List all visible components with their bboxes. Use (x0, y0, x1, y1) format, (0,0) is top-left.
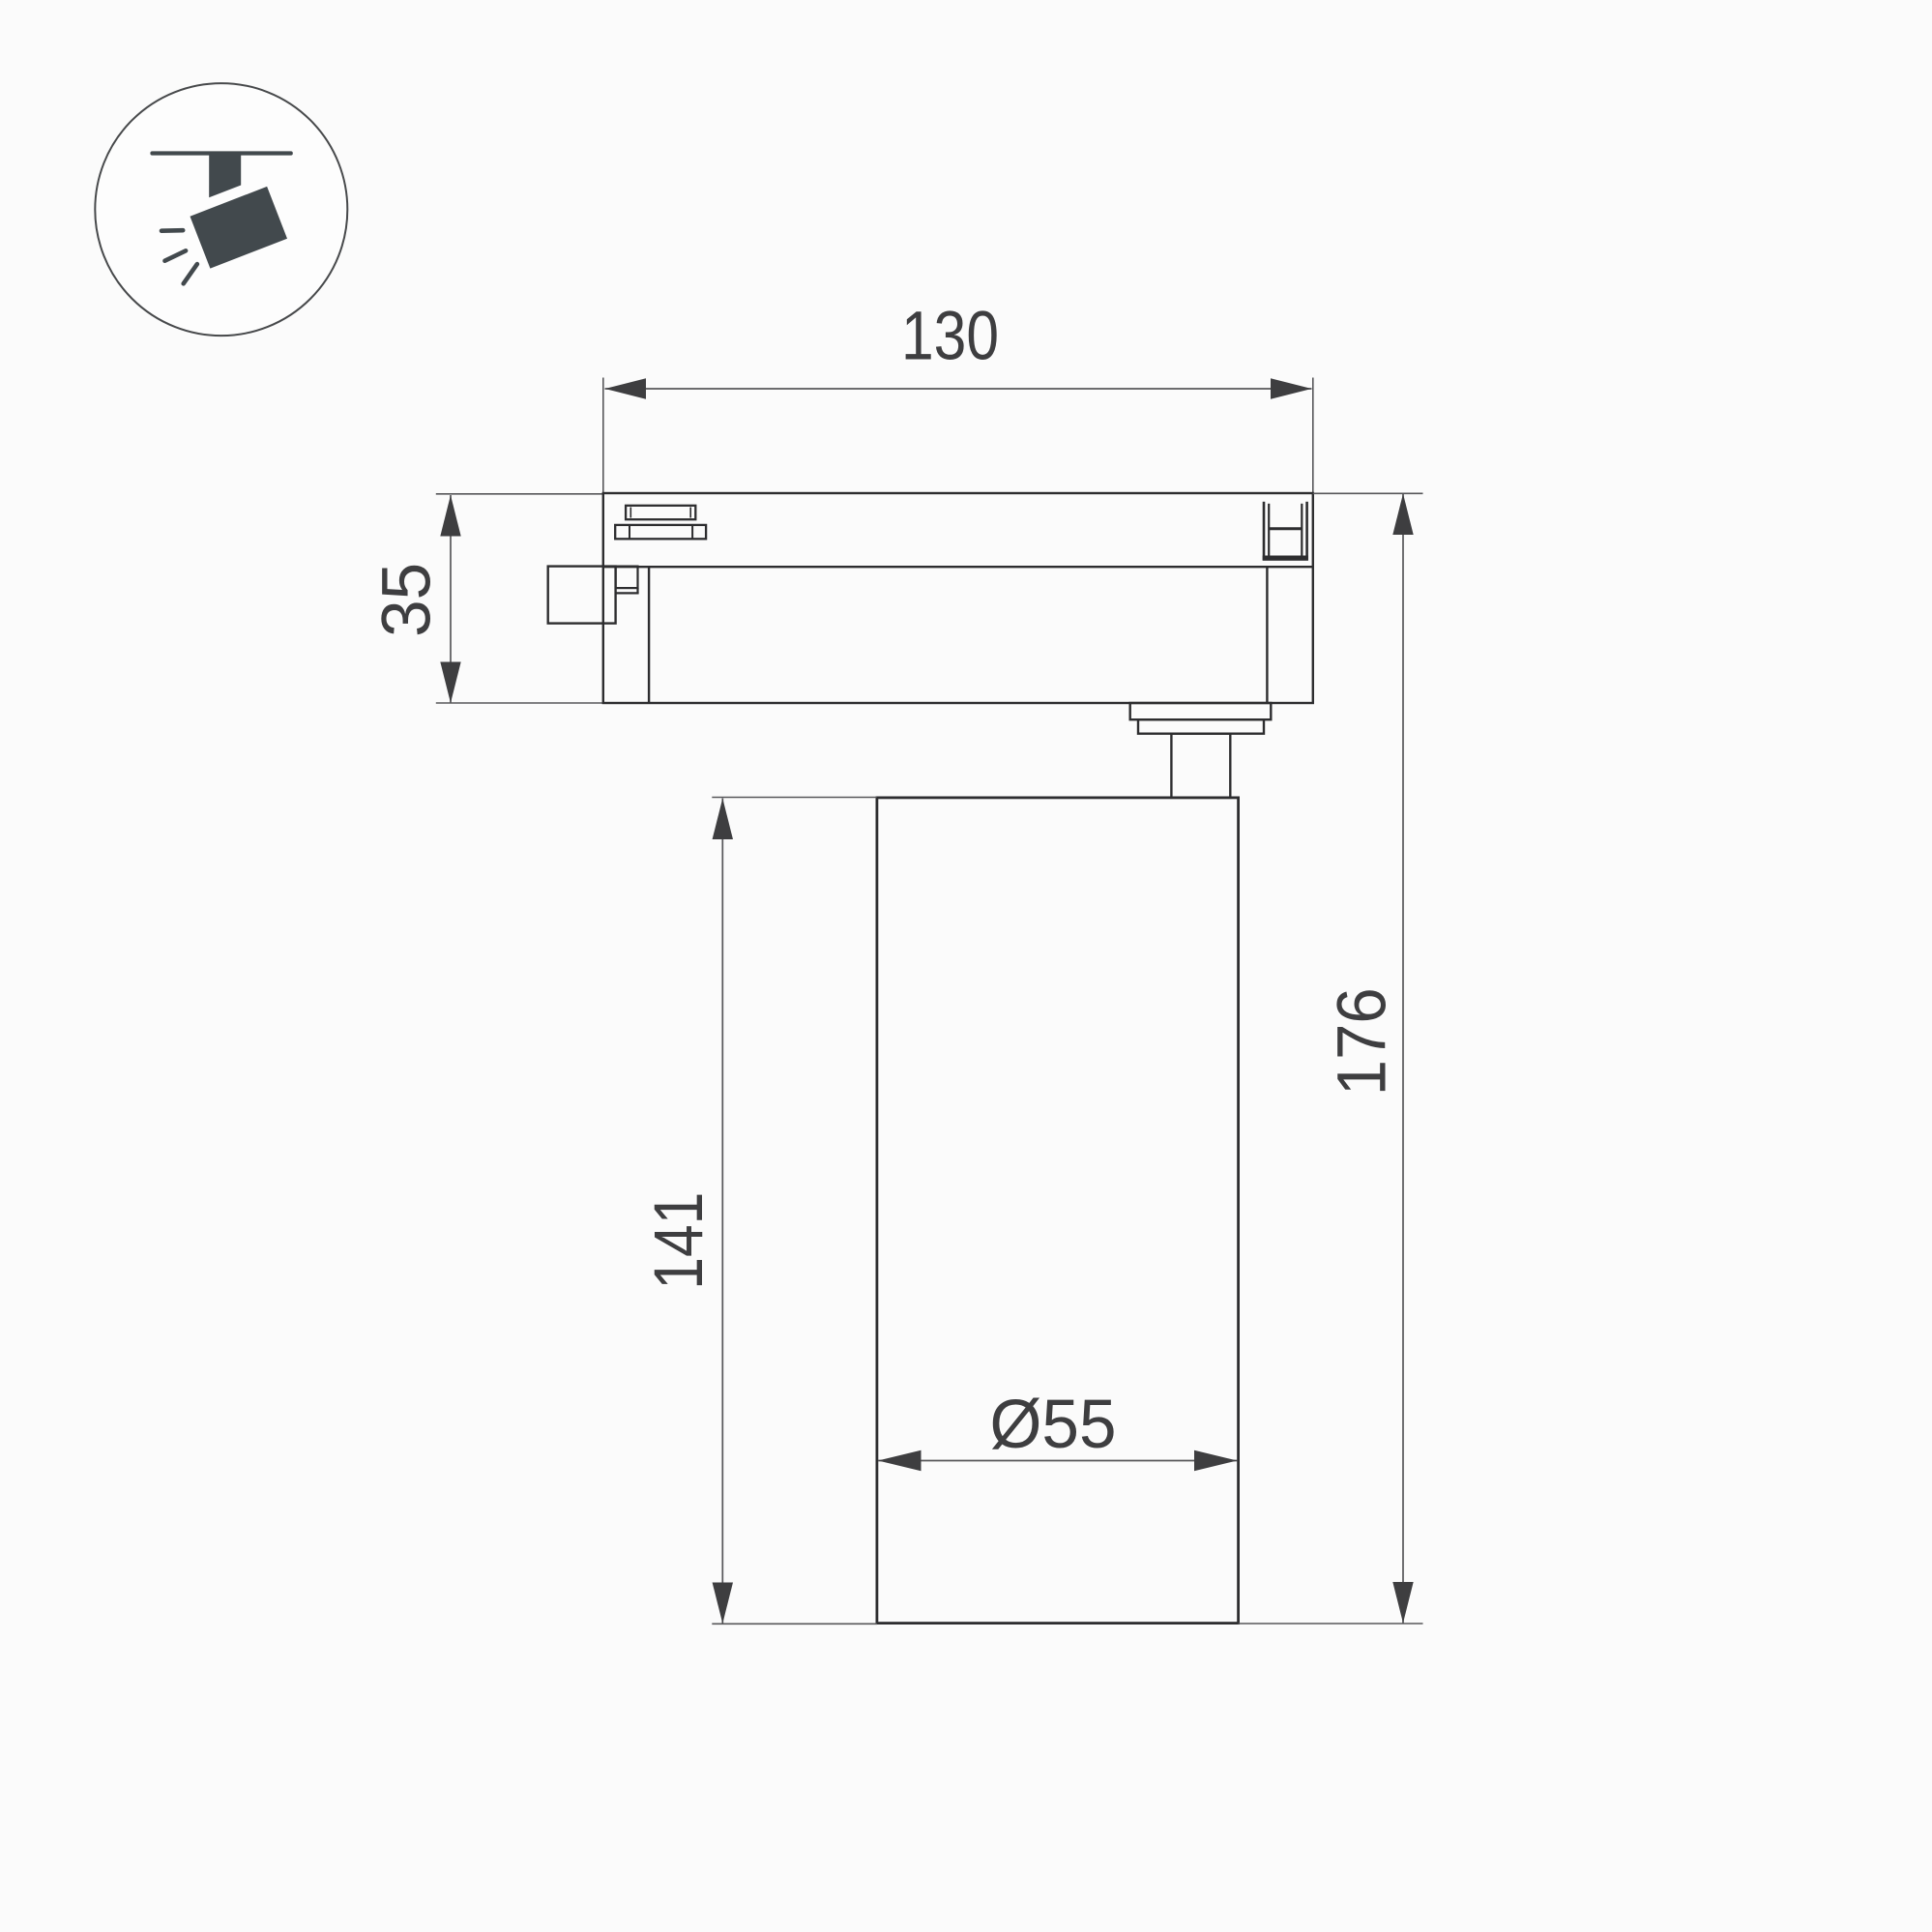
svg-text:35: 35 (368, 563, 446, 637)
svg-text:141: 141 (640, 1192, 717, 1290)
svg-text:176: 176 (1323, 987, 1400, 1096)
svg-text:Ø55: Ø55 (990, 1386, 1117, 1463)
svg-text:130: 130 (901, 298, 999, 375)
